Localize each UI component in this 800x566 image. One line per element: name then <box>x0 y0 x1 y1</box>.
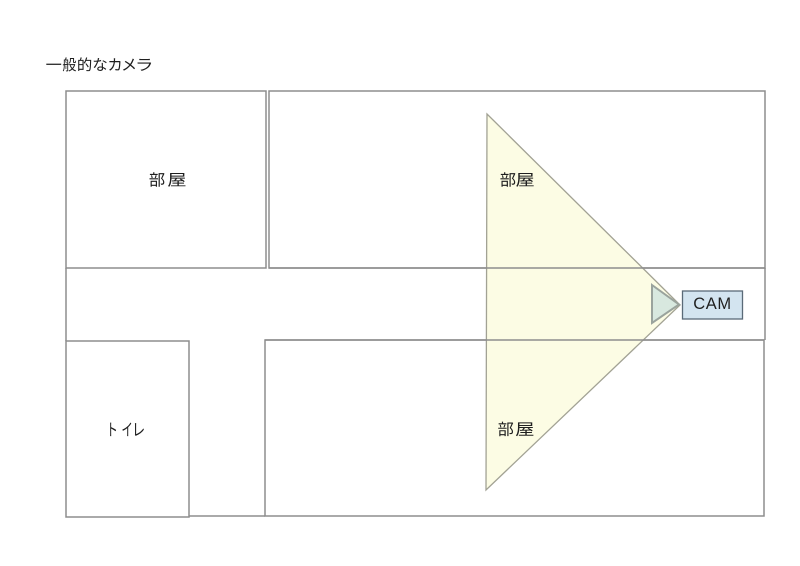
svg-text:CAM: CAM <box>693 295 731 313</box>
